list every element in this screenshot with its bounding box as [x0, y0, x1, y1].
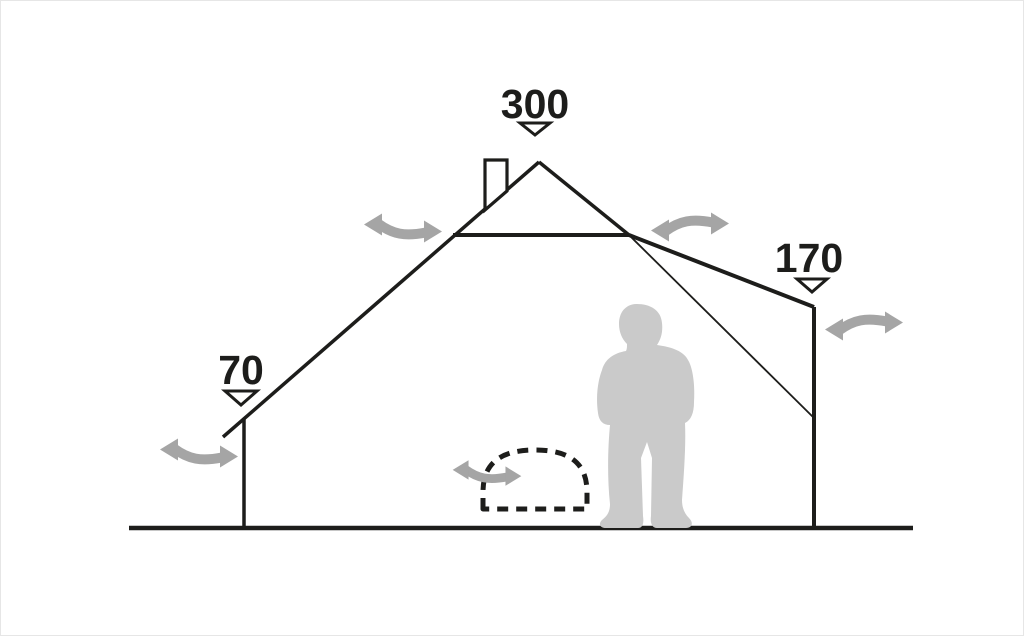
ventilation-arrow-right-wall-icon — [825, 312, 903, 341]
diagram-canvas: 300 70 170 — [1, 1, 1024, 636]
left-wall-height-label: 70 — [218, 347, 264, 393]
left-wall-height-marker-icon — [225, 391, 257, 405]
ventilation-arrow-right-ridge-icon — [651, 213, 729, 242]
person-silhouette — [597, 304, 694, 528]
ventilation-arrow-left-ridge-icon — [364, 214, 442, 243]
chimney-icon — [485, 160, 507, 210]
ventilation-arrow-stove-icon — [453, 460, 522, 486]
ventilation-arrow-left-eave-icon — [160, 439, 238, 468]
peak-height-label: 300 — [501, 81, 569, 127]
right-wall-height-label: 170 — [775, 235, 843, 281]
tent-dimension-diagram: 300 70 170 — [0, 0, 1024, 636]
right-upper-roof-line — [539, 162, 629, 235]
